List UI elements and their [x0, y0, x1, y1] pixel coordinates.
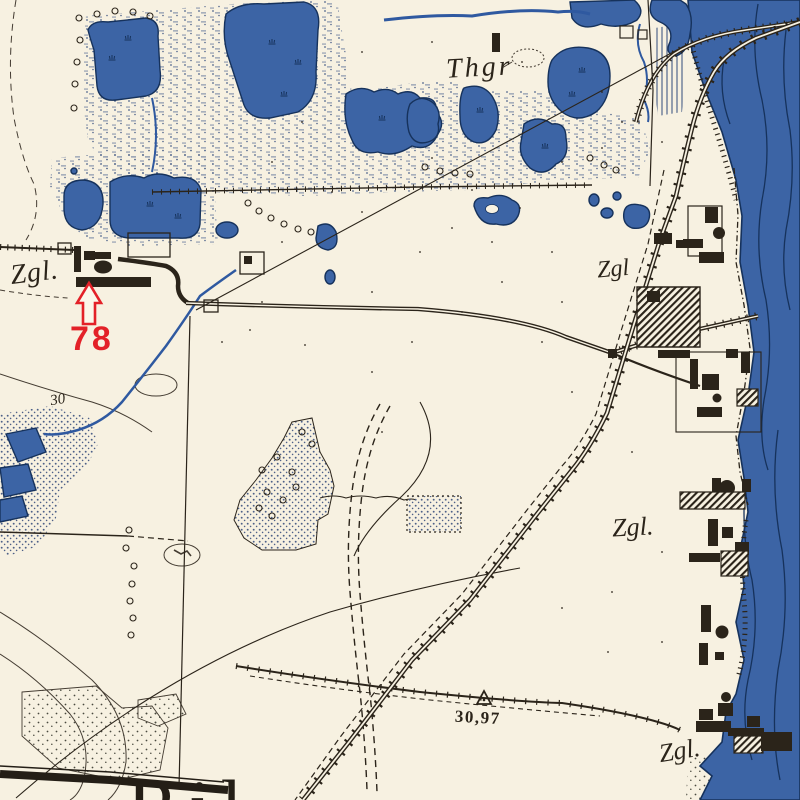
- map-screenshot: Zgl. Thgr Zgl Zgl. Zgl. 30,97 30 Ril 78: [0, 0, 800, 800]
- map-canvas: Zgl. Thgr Zgl Zgl. Zgl. 30,97 30 Ril 78: [0, 0, 800, 800]
- label-contour-30: 30: [48, 391, 67, 410]
- label-zgl-west: Zgl.: [9, 254, 61, 291]
- label-place-name-fragment: Ril: [127, 764, 252, 800]
- brickworks-upper-right: [637, 287, 700, 358]
- dotted-enclosure: [407, 496, 461, 532]
- label-zgl-mid-right: Zgl.: [611, 511, 654, 542]
- label-elevation-point: 30,97: [454, 707, 501, 728]
- annotation-number: 78: [70, 320, 114, 358]
- label-thgr: Thgr: [445, 50, 513, 84]
- label-zgl-upper-right: Zgl: [596, 255, 630, 284]
